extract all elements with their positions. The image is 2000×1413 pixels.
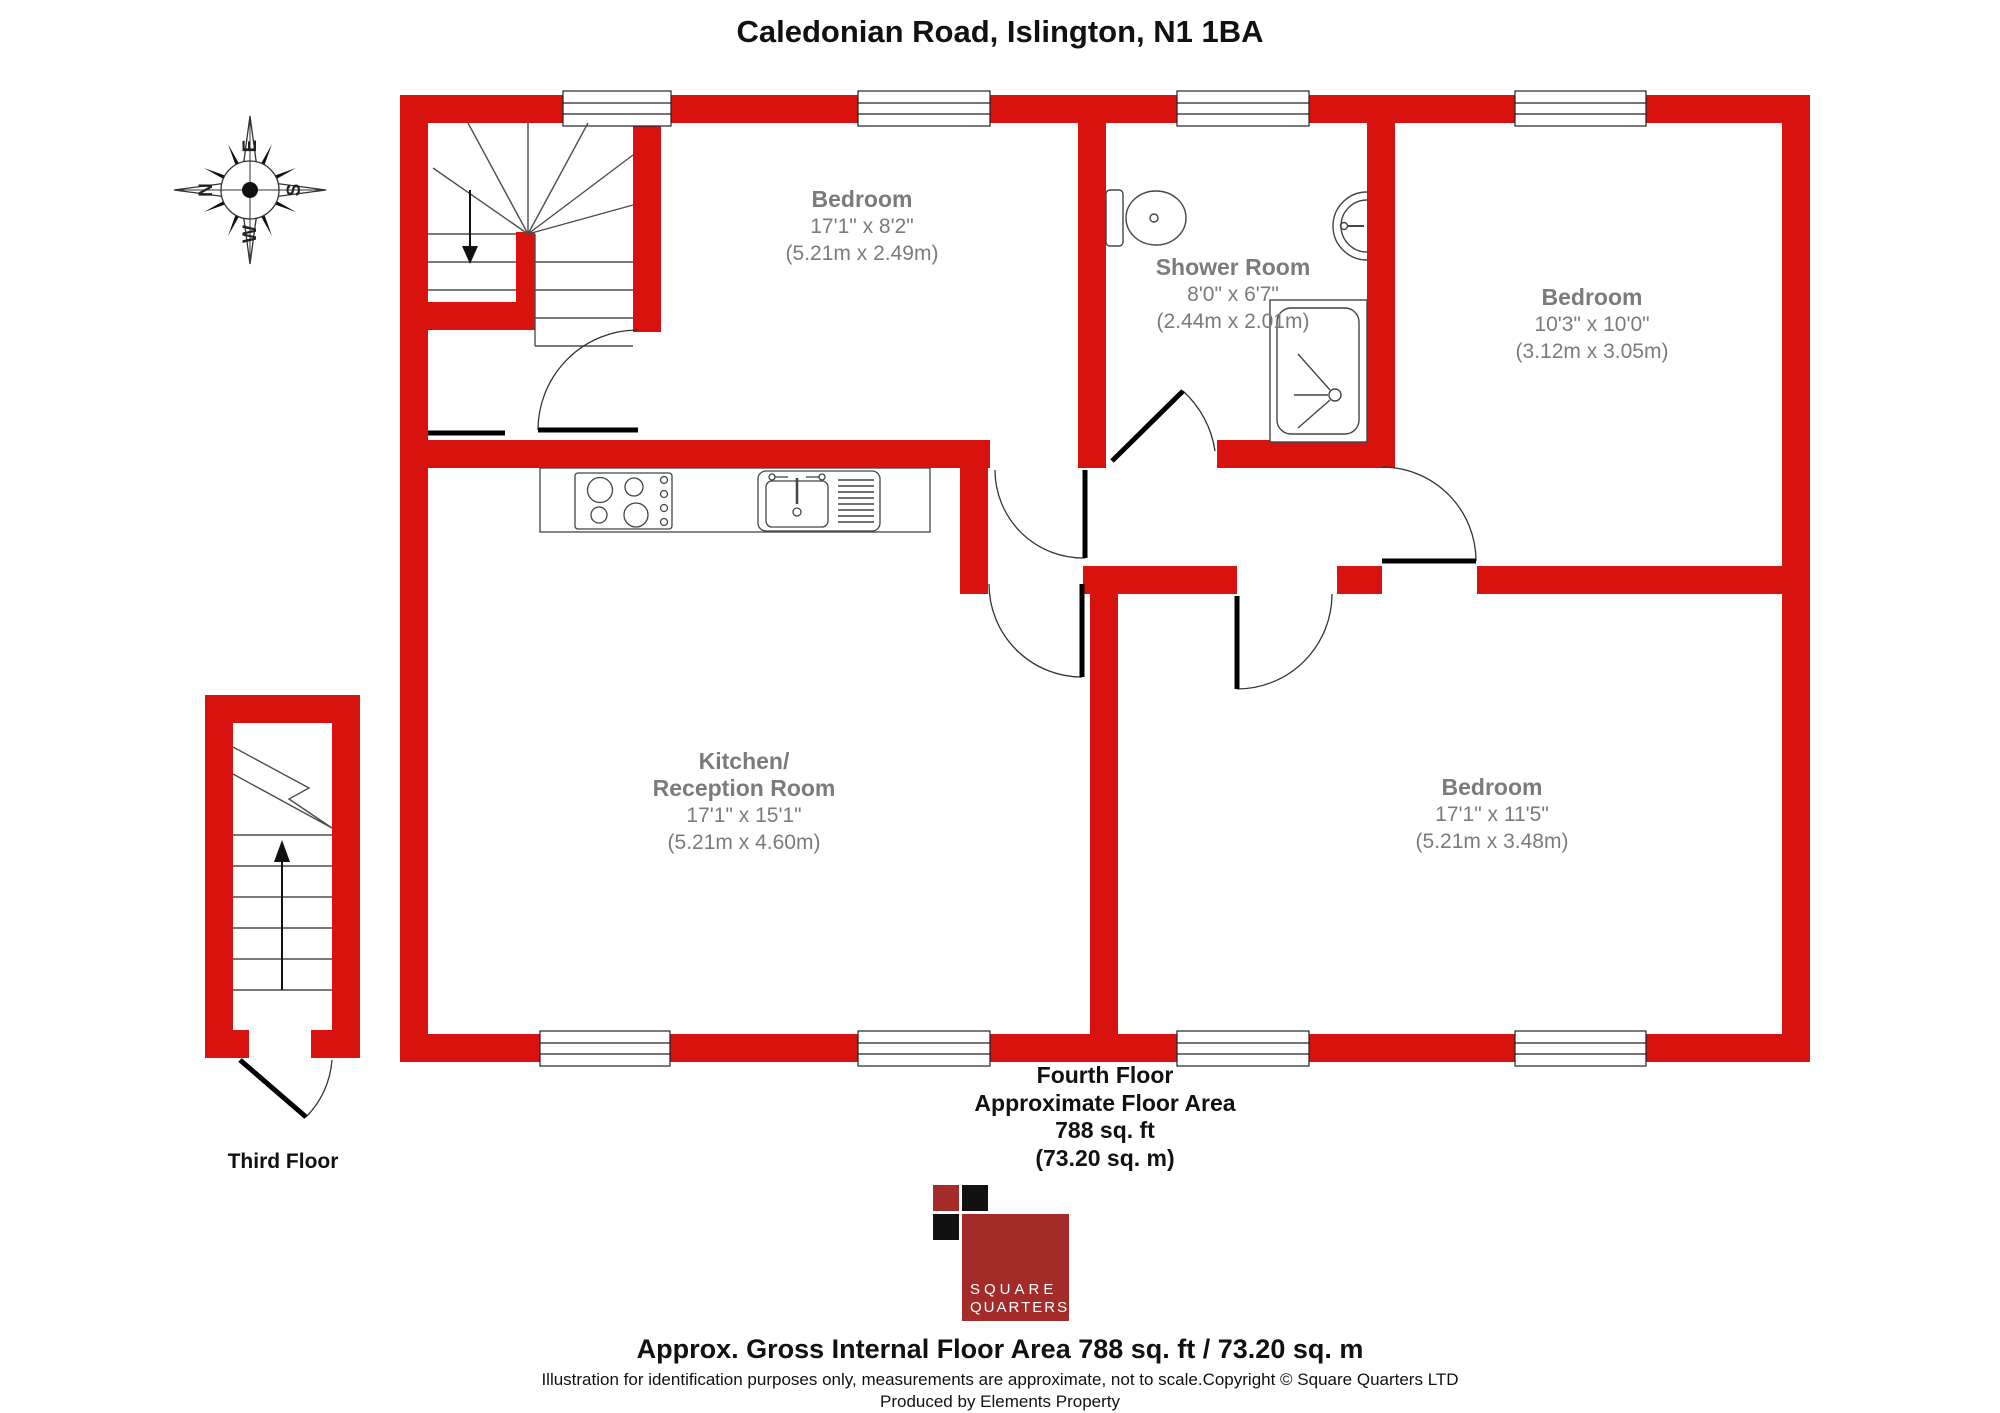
floor-name: Fourth Floor <box>974 1062 1235 1090</box>
door-bedroom-bottom <box>1237 594 1332 689</box>
third-floor-label: Third Floor <box>228 1150 339 1174</box>
room-dims-imperial: 17'1" x 8'2" <box>786 213 939 240</box>
room-name: Bedroom <box>1416 774 1569 801</box>
hob-icon <box>575 473 672 529</box>
room-label-kitchen-reception: Kitchen/ Reception Room 17'1" x 15'1" (5… <box>653 748 836 856</box>
room-label-bedroom-top: Bedroom 17'1" x 8'2" (5.21m x 2.49m) <box>786 186 939 267</box>
floorplan-page: Caledonian Road, Islington, N1 1BA <box>0 0 2000 1413</box>
window <box>563 91 671 126</box>
room-dims-imperial: 17'1" x 11'5" <box>1416 801 1569 828</box>
compass-east-label: E <box>240 140 261 153</box>
room-name: Bedroom <box>786 186 939 213</box>
door-shower-room <box>1112 391 1215 461</box>
room-label-bedroom-bottom: Bedroom 17'1" x 11'5" (5.21m x 3.48m) <box>1416 774 1569 855</box>
footer-producer: Produced by Elements Property <box>880 1392 1120 1412</box>
floorplan-drawing: E N S W <box>0 0 2000 1413</box>
basin-icon <box>1333 192 1367 260</box>
logo-black-square-left <box>933 1214 959 1240</box>
window <box>1177 91 1309 126</box>
window <box>1515 91 1646 126</box>
room-dims-metric: (5.21m x 3.48m) <box>1416 828 1569 855</box>
compass-north-label: N <box>196 183 217 197</box>
window <box>858 91 990 126</box>
kitchen-counter <box>540 468 930 532</box>
compass-south-label: S <box>284 184 305 197</box>
third-floor-staircase <box>233 747 332 1117</box>
logo-black-square-top <box>962 1185 988 1211</box>
floor-area-ft: 788 sq. ft <box>974 1117 1235 1145</box>
footer-area-summary: Approx. Gross Internal Floor Area 788 sq… <box>637 1334 1364 1365</box>
logo-text-line1: SQUARE <box>970 1281 1057 1299</box>
door-bedroom-right <box>1382 467 1476 561</box>
stairs-up-arrow-icon <box>274 840 290 990</box>
window <box>858 1031 990 1066</box>
compass-rose-icon: E N S W <box>174 116 326 264</box>
sink-icon <box>758 471 880 531</box>
compass-west-label: W <box>240 225 261 243</box>
floor-area-m: (73.20 sq. m) <box>974 1145 1235 1173</box>
room-dims-metric: (5.21m x 4.60m) <box>653 829 836 856</box>
logo-text-line2: QUARTERS <box>970 1299 1069 1317</box>
room-name: Kitchen/ <box>653 748 836 775</box>
logo-small-red-square <box>933 1185 959 1211</box>
door-kitchen <box>989 584 1082 677</box>
stairs-down-arrow-icon <box>462 190 478 264</box>
window <box>1177 1031 1309 1066</box>
room-label-bedroom-right: Bedroom 10'3" x 10'0" (3.12m x 3.05m) <box>1516 284 1669 365</box>
toilet-icon <box>1106 190 1186 246</box>
floor-area-label: Approximate Floor Area <box>974 1090 1235 1118</box>
room-dims-imperial: 17'1" x 15'1" <box>653 802 836 829</box>
room-dims-metric: (3.12m x 3.05m) <box>1516 338 1669 365</box>
window <box>1515 1031 1646 1066</box>
room-dims-imperial: 8'0" x 6'7" <box>1156 281 1311 308</box>
room-dims-metric: (2.44m x 2.01m) <box>1156 308 1311 335</box>
walls <box>205 95 1810 1062</box>
room-dims-metric: (5.21m x 2.49m) <box>786 240 939 267</box>
room-name-line2: Reception Room <box>653 775 836 802</box>
footer-disclaimer: Illustration for identification purposes… <box>541 1370 1458 1390</box>
door-hall-north <box>995 470 1085 558</box>
room-name: Shower Room <box>1156 254 1311 281</box>
floor-summary: Fourth Floor Approximate Floor Area 788 … <box>974 1062 1235 1172</box>
room-name: Bedroom <box>1516 284 1669 311</box>
third-floor-door <box>240 1060 332 1117</box>
room-label-shower-room: Shower Room 8'0" x 6'7" (2.44m x 2.01m) <box>1156 254 1311 335</box>
window <box>540 1031 670 1066</box>
room-dims-imperial: 10'3" x 10'0" <box>1516 311 1669 338</box>
